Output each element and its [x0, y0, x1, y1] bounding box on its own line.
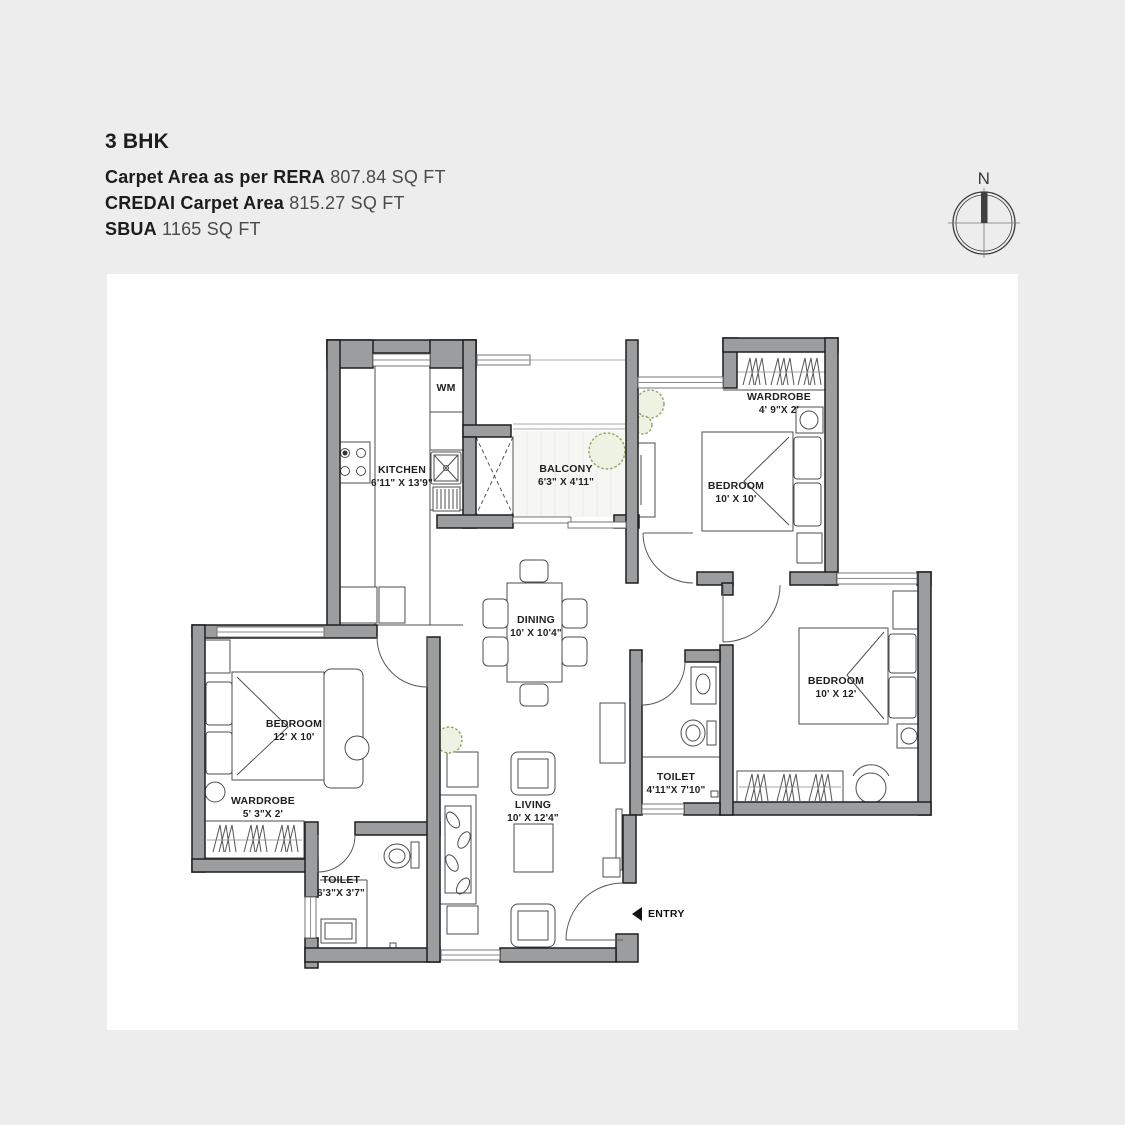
room-label-bedroom-right: BEDROOM 10' X 12' — [808, 674, 864, 702]
entry-arrow-icon — [632, 907, 642, 921]
room-label-toilet-left: TOILET 6'3"X 3'7" — [317, 873, 365, 901]
room-label-wm: WM — [436, 381, 455, 395]
window — [642, 804, 684, 814]
room-label-kitchen: KITCHEN 6'11" X 13'9" — [371, 463, 433, 491]
room-label-bedroom-left: BEDROOM 12' X 10' — [266, 717, 322, 745]
plant-icon — [636, 390, 664, 418]
window — [373, 354, 430, 366]
room-label-bedroom-top: BEDROOM 10' X 10' — [708, 479, 764, 507]
room-label-wardrobe-left: WARDROBE 5' 3"X 2' — [231, 794, 295, 822]
balcony-slider — [513, 517, 626, 528]
compass-north-label: N — [978, 169, 991, 189]
room-label-living: LIVING 10' X 12'4" — [507, 798, 559, 826]
entry-marker: ENTRY — [632, 907, 685, 921]
window — [217, 627, 324, 637]
room-label-wardrobe-top: WARDROBE 4' 9"X 2' — [747, 390, 811, 418]
bedroom-left-furniture — [199, 640, 369, 858]
compass-icon — [948, 188, 1020, 258]
floorplan-drawing — [0, 0, 1125, 1125]
door-arc — [643, 533, 693, 583]
kitchen-counter-box — [379, 587, 405, 623]
entry-label: ENTRY — [648, 908, 685, 920]
wardrobe-top-hangers — [725, 358, 825, 385]
room-label-balcony: BALCONY 6'3" X 4'11" — [538, 462, 594, 490]
door-arc — [566, 883, 623, 940]
room-label-dining: DINING 10' X 10'4" — [510, 613, 562, 641]
terrace-edges — [513, 360, 626, 429]
window — [441, 950, 500, 960]
page: { "header": { "title": "3 BHK", "areas":… — [0, 0, 1125, 1125]
door-arc — [642, 662, 685, 705]
window — [305, 897, 316, 938]
window — [837, 573, 917, 584]
kitchen-sink-icon — [431, 452, 461, 511]
room-label-toilet-mid: TOILET 4'11"X 7'10" — [647, 770, 706, 798]
stove-icon — [337, 442, 370, 483]
duct-shaft — [476, 437, 513, 515]
window — [477, 355, 530, 365]
window — [638, 377, 723, 388]
door-arc — [318, 835, 355, 872]
kitchen-counter-box — [340, 587, 377, 623]
plant-icon — [589, 433, 625, 469]
door-arc — [377, 637, 427, 687]
